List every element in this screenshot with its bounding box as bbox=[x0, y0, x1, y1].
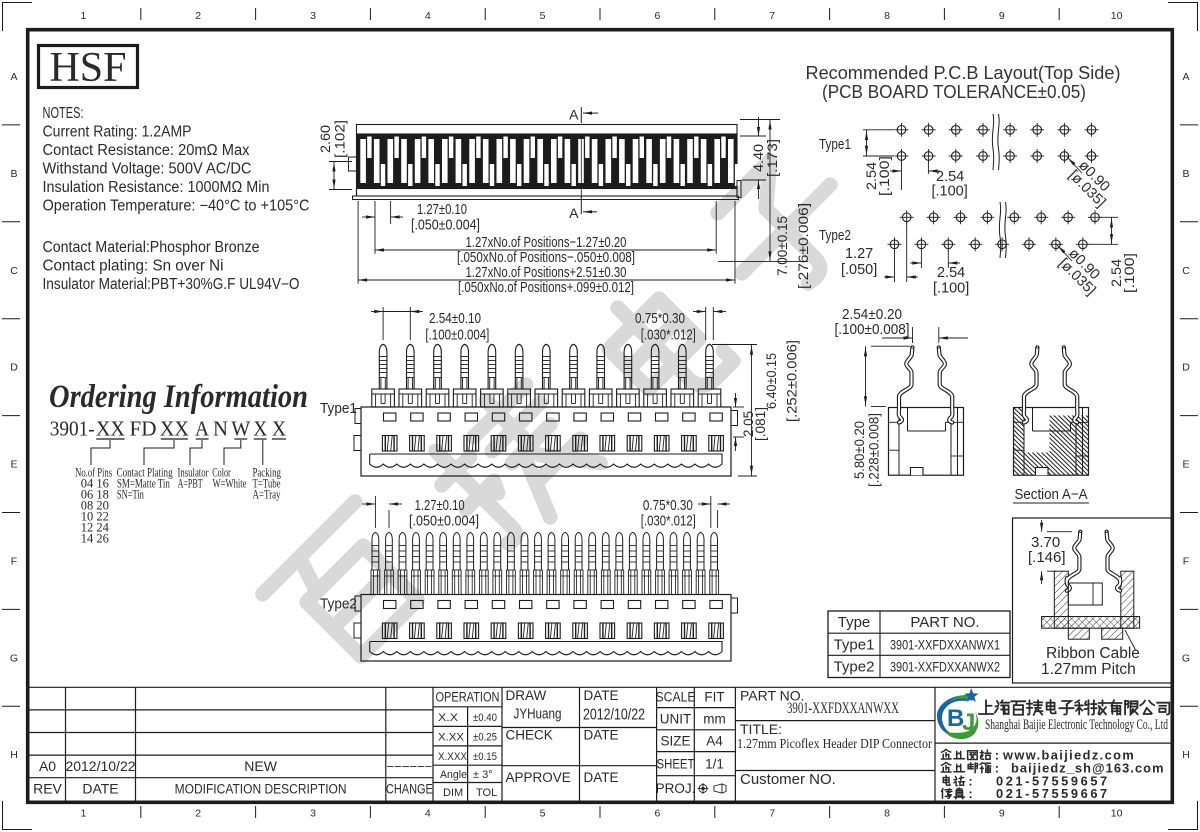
svg-text:2.54±0.10: 2.54±0.10 bbox=[429, 310, 481, 327]
svg-text:Operation Temperature: −40°C t: Operation Temperature: −40°C to +105°C bbox=[43, 198, 310, 215]
svg-text:Ordering Information: Ordering Information bbox=[49, 379, 308, 415]
svg-text:1/1: 1/1 bbox=[705, 757, 724, 772]
svg-text:W=White: W=White bbox=[213, 477, 247, 491]
svg-text:2: 2 bbox=[195, 808, 201, 820]
svg-text:1.27±0.10: 1.27±0.10 bbox=[415, 497, 465, 514]
svg-text:7.00±0.15: 7.00±0.15 bbox=[774, 216, 790, 276]
svg-text:Type2: Type2 bbox=[834, 659, 875, 676]
svg-text:[.030*.012]: [.030*.012] bbox=[641, 327, 696, 344]
svg-text:2012/10/22: 2012/10/22 bbox=[583, 707, 645, 724]
svg-text:A0: A0 bbox=[39, 758, 56, 774]
svg-text:CHANGE: CHANGE bbox=[386, 782, 433, 797]
svg-text:9: 9 bbox=[999, 10, 1005, 22]
svg-text:DATE: DATE bbox=[82, 781, 118, 797]
svg-text:Angle: Angle bbox=[440, 769, 467, 781]
svg-text:[.050±0.004]: [.050±0.004] bbox=[411, 217, 480, 234]
svg-text:26: 26 bbox=[96, 532, 109, 546]
svg-text:A4: A4 bbox=[706, 734, 723, 749]
svg-text:6: 6 bbox=[654, 808, 660, 820]
svg-text:[.100]: [.100] bbox=[932, 184, 968, 200]
svg-text:A=Tray: A=Tray bbox=[253, 488, 282, 502]
svg-text:3901-XXFDXXANWXX: 3901-XXFDXXANWXX bbox=[787, 700, 899, 717]
svg-text:DATE: DATE bbox=[584, 770, 619, 785]
svg-text:Type1: Type1 bbox=[320, 400, 357, 417]
svg-text:XX: XX bbox=[96, 417, 125, 441]
svg-text:REV: REV bbox=[33, 781, 62, 797]
svg-text:1.27±0.10: 1.27±0.10 bbox=[417, 201, 467, 218]
svg-text:Insulator Material:PBT+30%G.F: Insulator Material:PBT+30%G.F UL94V−O bbox=[43, 276, 300, 293]
svg-text:SHEET: SHEET bbox=[657, 757, 695, 772]
svg-text:A: A bbox=[569, 107, 579, 123]
svg-text:B: B bbox=[1182, 168, 1189, 180]
svg-text:021-57559667: 021-57559667 bbox=[996, 786, 1110, 801]
svg-text:1: 1 bbox=[80, 808, 86, 820]
svg-text:FIT: FIT bbox=[704, 690, 724, 705]
svg-text:D: D bbox=[1182, 362, 1190, 374]
svg-text:2012/10/22: 2012/10/22 bbox=[65, 758, 135, 774]
svg-text:X.XX: X.XX bbox=[438, 732, 465, 744]
svg-text:8: 8 bbox=[884, 10, 890, 22]
svg-text:9: 9 bbox=[999, 808, 1005, 820]
svg-text:Contact Material:Phosphor Bron: Contact Material:Phosphor Bronze bbox=[43, 239, 260, 256]
svg-text:Type1: Type1 bbox=[819, 136, 851, 153]
svg-text:4: 4 bbox=[425, 10, 431, 22]
svg-text:E: E bbox=[10, 459, 17, 471]
svg-text:mm: mm bbox=[703, 712, 726, 727]
svg-text:X: X bbox=[253, 417, 267, 441]
svg-text:[.276±0.006]: [.276±0.006] bbox=[795, 203, 811, 289]
svg-text:3: 3 bbox=[310, 10, 316, 22]
svg-text:[.030*.012]: [.030*.012] bbox=[641, 513, 696, 530]
svg-text:1.27mm Pitch: 1.27mm Pitch bbox=[1041, 661, 1136, 678]
svg-text:[.252±0.006]: [.252±0.006] bbox=[785, 340, 800, 422]
svg-text:H: H bbox=[1182, 749, 1190, 761]
svg-text:Type1: Type1 bbox=[834, 637, 875, 654]
svg-text::: : bbox=[968, 786, 972, 801]
svg-text:NOTES:: NOTES: bbox=[43, 105, 84, 122]
svg-text:HSF: HSF bbox=[49, 45, 126, 91]
svg-text:7: 7 bbox=[769, 10, 775, 22]
svg-text:[.050]: [.050] bbox=[841, 262, 877, 278]
svg-text:A: A bbox=[1182, 71, 1189, 83]
svg-text:A: A bbox=[195, 417, 210, 441]
svg-text:OPERATION: OPERATION bbox=[436, 690, 500, 705]
svg-text:10: 10 bbox=[1111, 808, 1123, 820]
svg-text:[.228±0.008]: [.228±0.008] bbox=[867, 413, 882, 487]
svg-text:W: W bbox=[231, 417, 250, 441]
svg-text:SN=Tin: SN=Tin bbox=[117, 488, 145, 502]
svg-text:5: 5 bbox=[540, 10, 546, 22]
svg-text:[.100]: [.100] bbox=[1121, 253, 1137, 293]
svg-text:±0.25: ±0.25 bbox=[473, 732, 497, 744]
svg-text:[.173]: [.173] bbox=[764, 139, 780, 177]
svg-text:C: C bbox=[1182, 265, 1190, 277]
svg-text:TOL: TOL bbox=[476, 787, 497, 799]
svg-text:1.27: 1.27 bbox=[845, 246, 873, 262]
svg-text:3901-XXFDXXANWX1: 3901-XXFDXXANWX1 bbox=[890, 638, 1000, 653]
svg-text:X.X: X.X bbox=[438, 712, 459, 724]
svg-text:E: E bbox=[1182, 459, 1189, 471]
svg-text:G: G bbox=[10, 652, 18, 664]
svg-text:TITLE:: TITLE: bbox=[740, 721, 782, 737]
svg-text:APPROVE: APPROVE bbox=[506, 770, 571, 785]
svg-text:PROJ.: PROJ. bbox=[656, 781, 696, 796]
svg-text:[.050xNo.of Positions+.099±0.0: [.050xNo.of Positions+.099±0.012] bbox=[458, 279, 634, 296]
svg-text:Contact plating: Sn over Ni: Contact plating: Sn over Ni bbox=[43, 258, 224, 275]
svg-text:4: 4 bbox=[425, 808, 431, 820]
svg-text:Insulation Resistance: 1000MΩ: Insulation Resistance: 1000MΩ Min bbox=[43, 179, 270, 196]
svg-text:3: 3 bbox=[310, 808, 316, 820]
svg-text:Current Rating: 1.2AMP: Current Rating: 1.2AMP bbox=[43, 124, 192, 141]
svg-text:3901-: 3901- bbox=[50, 417, 95, 441]
svg-text:DIM: DIM bbox=[443, 787, 463, 799]
svg-text:Customer NO.: Customer NO. bbox=[740, 771, 836, 788]
svg-text:±0.40: ±0.40 bbox=[473, 712, 497, 724]
svg-text:(PCB BOARD TOLERANCE±0.05): (PCB BOARD TOLERANCE±0.05) bbox=[822, 82, 1086, 102]
svg-text:X: X bbox=[272, 417, 286, 441]
svg-text:F: F bbox=[11, 556, 17, 568]
svg-text:XX: XX bbox=[160, 417, 189, 441]
svg-text:3901-XXFDXXANWX2: 3901-XXFDXXANWX2 bbox=[890, 660, 1000, 675]
svg-text:Recommended P.C.B Layout(Top S: Recommended P.C.B Layout(Top Side) bbox=[806, 63, 1121, 83]
svg-text:Contact Resistance: 20mΩ Max: Contact Resistance: 20mΩ Max bbox=[43, 142, 250, 159]
svg-text:0.75*0.30: 0.75*0.30 bbox=[635, 310, 685, 327]
svg-text:PART NO.: PART NO. bbox=[910, 614, 979, 631]
svg-text:DATE: DATE bbox=[584, 728, 619, 743]
svg-text:B: B bbox=[10, 168, 17, 180]
svg-text:NEW: NEW bbox=[244, 758, 277, 774]
svg-text:D: D bbox=[10, 362, 18, 374]
svg-text:± 3°: ± 3° bbox=[473, 769, 493, 781]
svg-text:Type: Type bbox=[838, 614, 871, 631]
svg-text:5: 5 bbox=[540, 808, 546, 820]
svg-text:F: F bbox=[1183, 556, 1189, 568]
svg-text:Type2: Type2 bbox=[819, 227, 851, 244]
svg-text:7: 7 bbox=[769, 808, 775, 820]
svg-text:Ribbon Cable: Ribbon Cable bbox=[1046, 645, 1140, 662]
svg-text:14: 14 bbox=[81, 532, 94, 546]
svg-text:Section A−A: Section A−A bbox=[1015, 486, 1088, 503]
svg-text:FD: FD bbox=[130, 417, 157, 441]
svg-text:A=PBT: A=PBT bbox=[178, 477, 203, 491]
svg-text:[.102]: [.102] bbox=[332, 120, 348, 158]
svg-text:SCALE: SCALE bbox=[656, 690, 696, 705]
svg-text:CHECK: CHECK bbox=[506, 728, 553, 743]
svg-text:JYHuang: JYHuang bbox=[514, 707, 562, 723]
svg-text:6: 6 bbox=[654, 10, 660, 22]
svg-text:[.100±0.004]: [.100±0.004] bbox=[425, 327, 489, 344]
svg-text:J: J bbox=[962, 709, 975, 736]
svg-text:2: 2 bbox=[195, 10, 201, 22]
svg-text:C: C bbox=[10, 265, 18, 277]
svg-text:UNIT: UNIT bbox=[660, 712, 692, 727]
svg-text:MODIFICATION DESCRIPTION: MODIFICATION DESCRIPTION bbox=[175, 782, 347, 797]
svg-text:DATE: DATE bbox=[584, 688, 619, 703]
svg-text:G: G bbox=[1182, 652, 1190, 664]
svg-text:H: H bbox=[10, 749, 18, 761]
svg-text:10: 10 bbox=[1111, 10, 1123, 22]
svg-text:Type2: Type2 bbox=[320, 596, 357, 613]
svg-text:[.100]: [.100] bbox=[876, 156, 892, 196]
svg-text:1.27mm Picoflex Header DIP Con: 1.27mm Picoflex Header DIP Connector bbox=[737, 736, 932, 751]
svg-text:6.40±0.15: 6.40±0.15 bbox=[764, 353, 779, 409]
svg-text:2.54: 2.54 bbox=[937, 265, 965, 281]
svg-text:A: A bbox=[569, 205, 579, 221]
svg-text:1: 1 bbox=[80, 10, 86, 22]
svg-text:SIZE: SIZE bbox=[660, 734, 690, 749]
svg-text:−−−−−−: −−−−−− bbox=[387, 759, 433, 774]
svg-text:DRAW: DRAW bbox=[506, 688, 547, 703]
svg-text:0.75*0.30: 0.75*0.30 bbox=[643, 497, 693, 514]
svg-text:8: 8 bbox=[884, 808, 890, 820]
svg-text:5.80±0.20: 5.80±0.20 bbox=[852, 421, 867, 479]
svg-text:X.XXX: X.XXX bbox=[438, 751, 468, 763]
svg-text:A: A bbox=[10, 71, 17, 83]
svg-text:Shanghai Baijie Electronic Tec: Shanghai Baijie Electronic Technology Co… bbox=[985, 717, 1168, 733]
svg-text:Withstand Voltage: 500V AC/DC: Withstand Voltage: 500V AC/DC bbox=[43, 161, 252, 178]
svg-text:±0.15: ±0.15 bbox=[473, 751, 497, 763]
svg-text:[.146]: [.146] bbox=[1028, 549, 1066, 566]
svg-text:[.100±0.008]: [.100±0.008] bbox=[835, 321, 910, 338]
svg-text:[.100]: [.100] bbox=[933, 281, 969, 297]
svg-text:[.050±0.004]: [.050±0.004] bbox=[409, 513, 479, 530]
svg-text:[.081]: [.081] bbox=[753, 407, 768, 441]
svg-text:N: N bbox=[213, 417, 228, 441]
